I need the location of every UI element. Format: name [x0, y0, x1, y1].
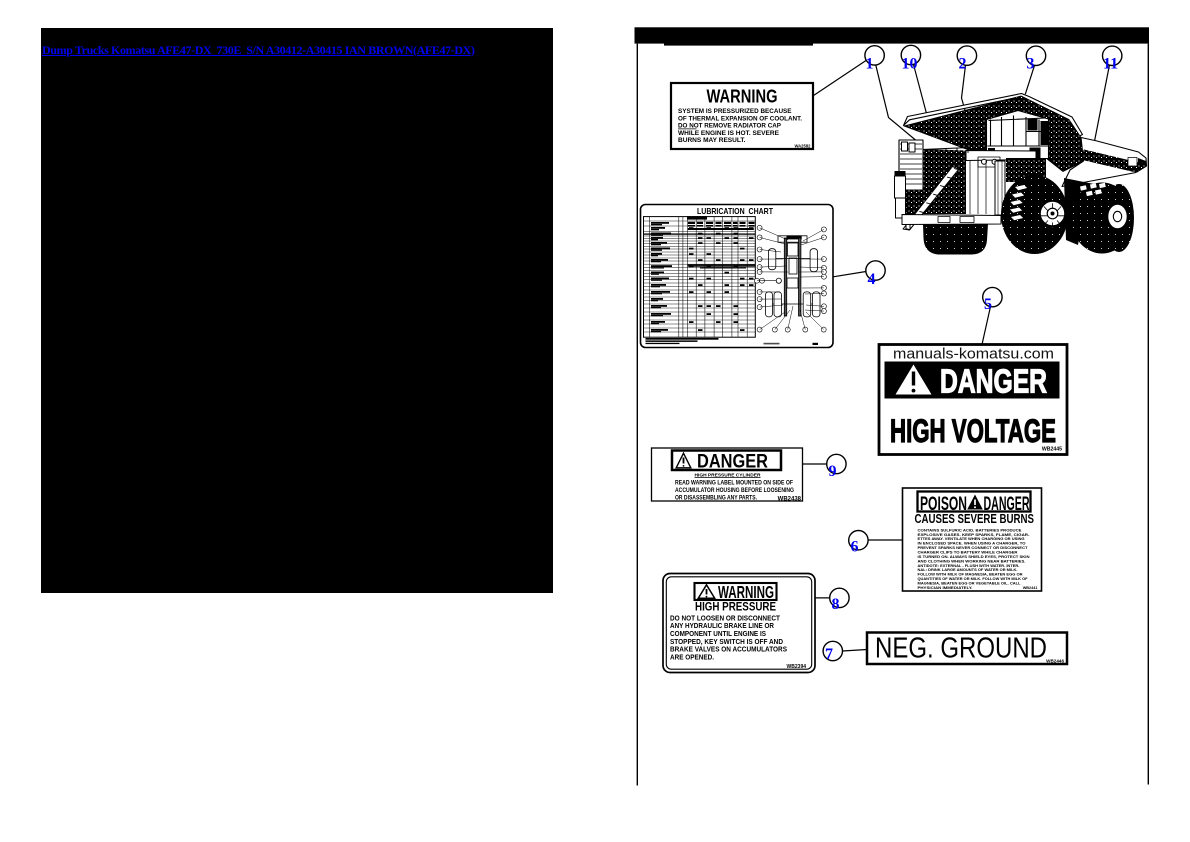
- svg-text:DO NOT LOOSEN OR DISCONNECT: DO NOT LOOSEN OR DISCONNECT: [670, 615, 781, 622]
- svg-text:3: 3: [1027, 55, 1035, 72]
- svg-text:7: 7: [825, 646, 833, 663]
- svg-text:IN ENCLOSED SPACE. WHEN USING: IN ENCLOSED SPACE. WHEN USING A CHARGER,…: [918, 542, 1026, 546]
- svg-text:STOPPED, KEY SWITCH IS OFF AND: STOPPED, KEY SWITCH IS OFF AND: [670, 639, 783, 646]
- svg-text:2: 2: [959, 55, 967, 72]
- svg-text:COMPONENT UNTIL ENGINE IS: COMPONENT UNTIL ENGINE IS: [670, 631, 766, 638]
- svg-text:OF THERMAL EXPANSION OF COOLAN: OF THERMAL EXPANSION OF COOLANT.: [678, 115, 802, 122]
- svg-text:ETTES AWAY. VENTILATE WHEN CHA: ETTES AWAY. VENTILATE WHEN CHARGING OR U…: [918, 537, 1025, 541]
- svg-text:SYSTEM IS PRESSURIZED BECAUSE: SYSTEM IS PRESSURIZED BECAUSE: [678, 108, 792, 115]
- svg-text:MAGNESIA, BEATEN EGG OR VEGETA: MAGNESIA, BEATEN EGG OR VEGETABLE OIL. C…: [918, 581, 1022, 585]
- svg-text:HIGH PRESSURE: HIGH PRESSURE: [695, 600, 776, 614]
- svg-text:9: 9: [829, 463, 837, 480]
- svg-text:CONTAINS SULFURIC ACID. BATTE: CONTAINS SULFURIC ACID. BATTERIES PRODUC…: [918, 528, 1023, 532]
- svg-text:DANGER: DANGER: [940, 363, 1047, 400]
- svg-text:HIGH VOLTAGE: HIGH VOLTAGE: [890, 413, 1056, 449]
- svg-text:ANY HYDRAULIC BRAKE LINE OR: ANY HYDRAULIC BRAKE LINE OR: [670, 623, 774, 630]
- svg-text:NEG. GROUND: NEG. GROUND: [875, 633, 1047, 665]
- svg-text:manuals-komatsu.com: manuals-komatsu.com: [893, 347, 1054, 363]
- svg-text:BURNS MAY RESULT.: BURNS MAY RESULT.: [678, 137, 746, 144]
- svg-text:FOLLOW WITH MILK OF MAGNESIA,: FOLLOW WITH MILK OF MAGNESIA, BEATEN EGG…: [918, 573, 1023, 577]
- svg-text:PREVENT SPARKS NEVER CONNECT O: PREVENT SPARKS NEVER CONNECT OR DISCONNE…: [918, 546, 1029, 550]
- svg-text:AND CLOTHING WHEN WORKING NEAR: AND CLOTHING WHEN WORKING NEAR BATTERIES…: [918, 559, 1026, 563]
- svg-text:DANGER: DANGER: [697, 451, 768, 472]
- svg-text:WB2394: WB2394: [787, 664, 807, 670]
- svg-text:4: 4: [868, 271, 876, 288]
- svg-text:NAL: DRINK LARGE AMOUNTS OF WA: NAL: DRINK LARGE AMOUNTS OF WATER OR MIL…: [918, 568, 1018, 572]
- svg-text:QUANTITIES OF WATER OR MILK.: QUANTITIES OF WATER OR MILK. FOLLOW WITH…: [918, 577, 1029, 581]
- svg-text:6: 6: [851, 539, 859, 556]
- svg-text:ANTIDOTE: EXTERNAL - FLUSH WI: ANTIDOTE: EXTERNAL - FLUSH WITH WATER. I…: [918, 564, 1021, 568]
- svg-text:WB2441: WB2441: [1023, 586, 1038, 590]
- svg-text:WB2445: WB2445: [1042, 447, 1062, 453]
- svg-text:EXPLOSIVE GASES. KEEP SPARKS,: EXPLOSIVE GASES. KEEP SPARKS, FLAME, CIG…: [918, 533, 1031, 537]
- svg-text:WHILE ENGINE IS HOT. SEVERE: WHILE ENGINE IS HOT. SEVERE: [678, 130, 780, 137]
- svg-text:OR DISASSEMBLING ANY PARTS.: OR DISASSEMBLING ANY PARTS.: [675, 495, 757, 502]
- svg-text:PHYSICIAN IMMEDIATELY.: PHYSICIAN IMMEDIATELY.: [918, 586, 973, 590]
- svg-text:ACCUMULATOR HOUSING BEFORE LOO: ACCUMULATOR HOUSING BEFORE LOOSENING: [675, 487, 794, 494]
- svg-text:WA2582: WA2582: [794, 144, 811, 149]
- svg-text:LUBRICATION CHART: LUBRICATION CHART: [697, 206, 773, 216]
- svg-text:READ WARNING LABEL MOUNTED ON: READ WARNING LABEL MOUNTED ON SIDE OF: [675, 480, 793, 487]
- svg-text:IS TURNED ON. ALWAYS SHIELD EY: IS TURNED ON. ALWAYS SHIELD EYES, PROTEC…: [918, 555, 1030, 559]
- svg-text:CAUSES SEVERE BURNS: CAUSES SEVERE BURNS: [915, 511, 1035, 526]
- svg-text:5: 5: [984, 296, 992, 313]
- svg-text:1: 1: [866, 55, 874, 72]
- svg-text:ARE OPENED.: ARE OPENED.: [670, 654, 714, 661]
- svg-text:CHARGER CLIPS TO BATTERY WHILE: CHARGER CLIPS TO BATTERY WHILE CHARGER: [918, 551, 1018, 555]
- svg-text:8: 8: [832, 596, 840, 613]
- svg-text:WARNING: WARNING: [707, 86, 778, 107]
- svg-text:BRAKE VALVES ON ACCUMULATORS: BRAKE VALVES ON ACCUMULATORS: [670, 647, 787, 654]
- svg-text:WB2438: WB2438: [778, 497, 802, 503]
- svg-text:WB2446: WB2446: [1046, 659, 1064, 664]
- svg-text:10: 10: [902, 55, 918, 72]
- svg-text:11: 11: [1103, 55, 1118, 72]
